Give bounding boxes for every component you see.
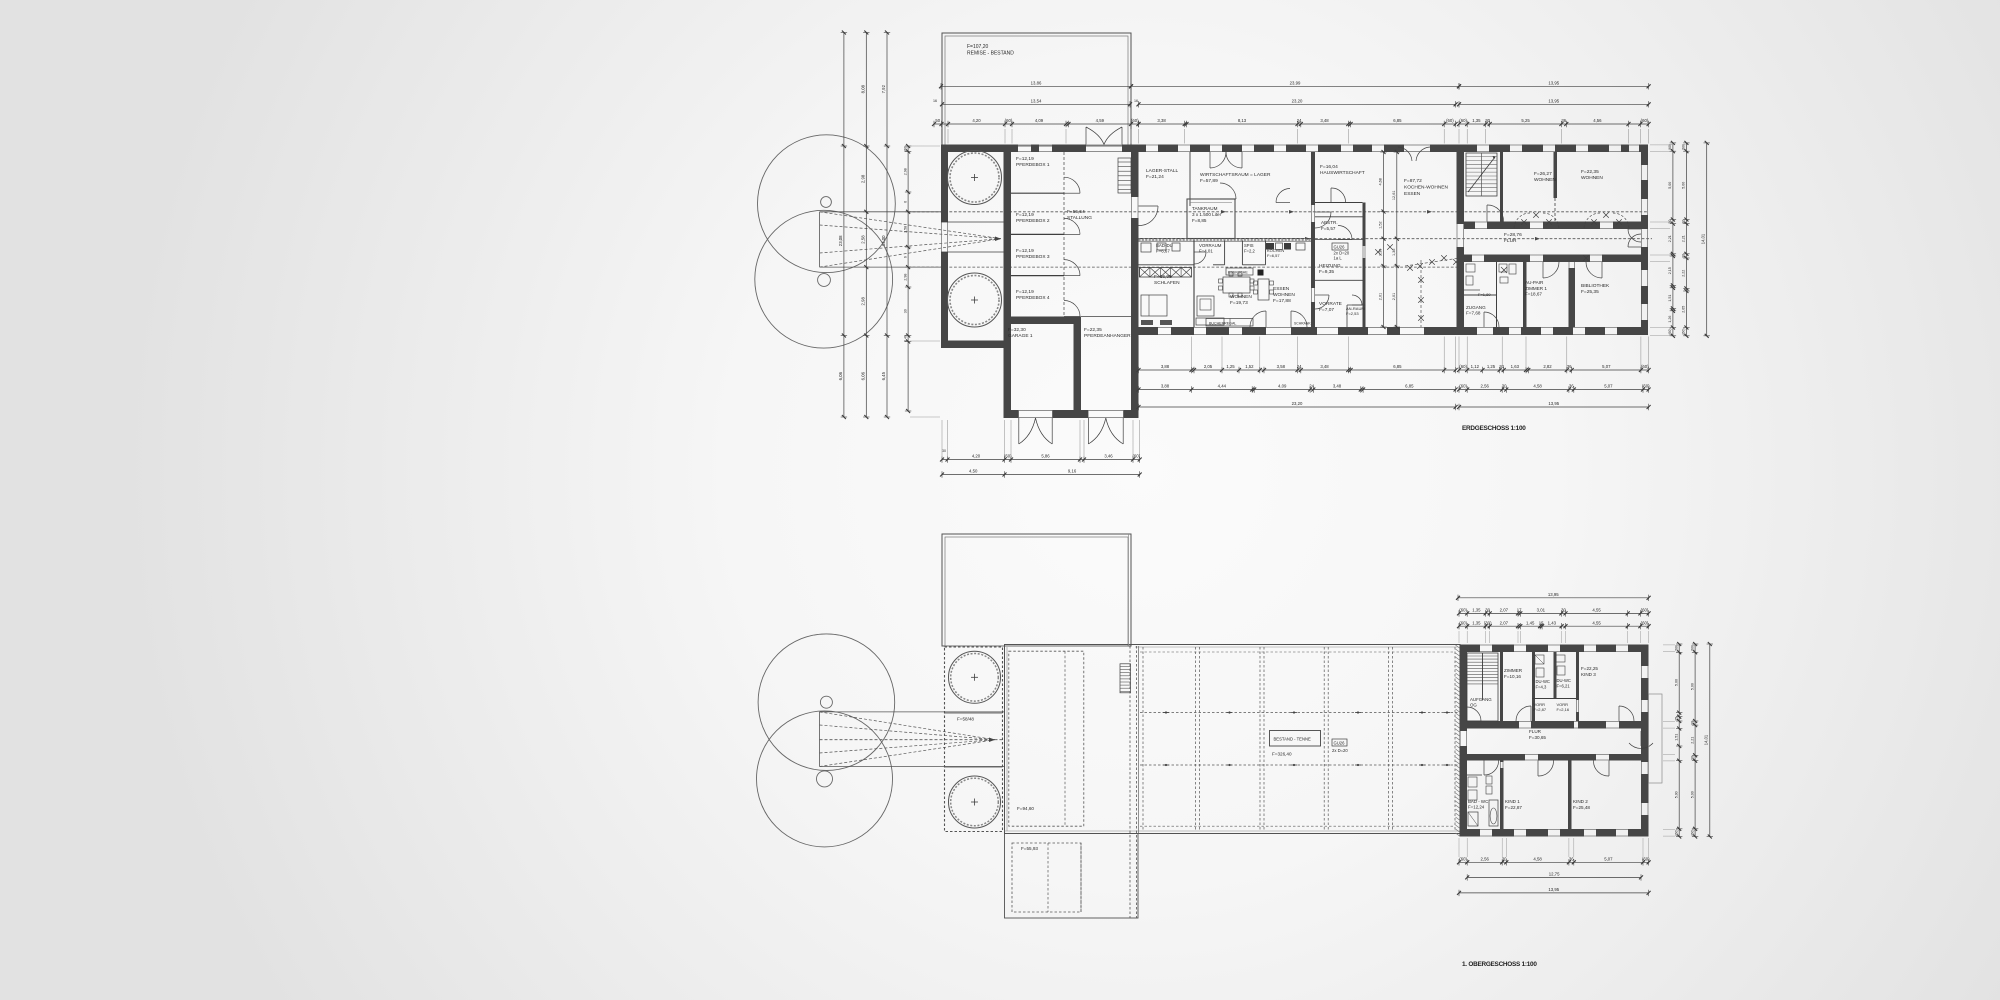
svg-text:F=12,24: F=12,24 xyxy=(1468,805,1485,810)
svg-text:36: 36 xyxy=(1569,384,1574,389)
svg-text:6,45: 6,45 xyxy=(881,371,886,380)
svg-text:15: 15 xyxy=(1539,620,1544,625)
svg-text:8,13: 8,13 xyxy=(1238,118,1247,123)
svg-text:F=30,65: F=30,65 xyxy=(1529,735,1546,740)
svg-text:13,95: 13,95 xyxy=(1548,887,1559,892)
svg-text:BUCHERREGAL: BUCHERREGAL xyxy=(1209,321,1236,325)
svg-text:BESTAND - TENNE: BESTAND - TENNE xyxy=(1274,736,1312,741)
svg-text:F=25,48: F=25,48 xyxy=(1573,805,1590,810)
svg-text:5,00: 5,00 xyxy=(1682,182,1686,189)
svg-text:(60): (60) xyxy=(1690,829,1694,835)
svg-text:F=19,73: F=19,73 xyxy=(1230,300,1248,306)
svg-text:3,88: 3,88 xyxy=(1161,364,1170,369)
svg-text:2,98: 2,98 xyxy=(861,297,866,306)
svg-text:KIND 2: KIND 2 xyxy=(1573,799,1588,804)
svg-text:5,00: 5,00 xyxy=(1690,683,1694,690)
svg-text:36: 36 xyxy=(1561,118,1566,123)
svg-text:50: 50 xyxy=(935,118,940,123)
svg-text:9,16: 9,16 xyxy=(1068,469,1077,474)
svg-text:5,07: 5,07 xyxy=(1604,384,1613,389)
svg-text:WOHNEN: WOHNEN xyxy=(1230,294,1252,300)
svg-text:16: 16 xyxy=(933,99,937,103)
svg-text:30: 30 xyxy=(1682,254,1686,258)
svg-text:F=5,57: F=5,57 xyxy=(1321,226,1336,231)
svg-text:VORRATE: VORRATE xyxy=(1319,301,1342,307)
svg-text:F=32,30: F=32,30 xyxy=(1008,327,1026,333)
svg-text:30: 30 xyxy=(1502,384,1507,389)
svg-text:5,00: 5,00 xyxy=(1674,679,1678,686)
svg-text:F=16,04: F=16,04 xyxy=(1320,164,1338,170)
svg-text:F=7,68: F=7,68 xyxy=(1466,311,1481,316)
svg-text:(30): (30) xyxy=(1484,620,1492,625)
svg-text:(60): (60) xyxy=(1131,118,1139,123)
svg-text:FLUR: FLUR xyxy=(1504,238,1517,244)
svg-text:1,12: 1,12 xyxy=(1471,364,1480,369)
svg-text:(60): (60) xyxy=(1459,384,1467,389)
svg-text:30: 30 xyxy=(1690,721,1694,725)
svg-text:1,51: 1,51 xyxy=(1674,734,1678,741)
svg-text:1,43: 1,43 xyxy=(1548,620,1557,625)
svg-text:AU-PAIR: AU-PAIR xyxy=(1525,280,1544,285)
svg-text:(60): (60) xyxy=(1668,328,1672,334)
svg-text:F=94,60: F=94,60 xyxy=(1017,806,1034,811)
svg-text:F=22,35: F=22,35 xyxy=(1581,169,1599,175)
svg-text:2,15: 2,15 xyxy=(1668,267,1672,274)
svg-text:(60): (60) xyxy=(1682,144,1686,150)
svg-text:13,95: 13,95 xyxy=(1548,401,1559,406)
svg-text:1a L: 1a L xyxy=(1334,256,1343,261)
svg-text:4,59: 4,59 xyxy=(1096,118,1105,123)
svg-text:F=25,35: F=25,35 xyxy=(1581,289,1599,295)
svg-text:(60): (60) xyxy=(1446,118,1454,123)
svg-text:16: 16 xyxy=(1134,99,1138,103)
svg-text:6,85: 6,85 xyxy=(1393,364,1402,369)
svg-text:F=12,19: F=12,19 xyxy=(1016,248,1034,254)
svg-text:2,98: 2,98 xyxy=(903,168,907,175)
svg-text:(60): (60) xyxy=(1682,328,1686,334)
svg-text:WOHNEN: WOHNEN xyxy=(1581,175,1603,181)
svg-text:4,56: 4,56 xyxy=(1593,118,1602,123)
svg-text:F=10,16: F=10,16 xyxy=(1504,674,1521,679)
svg-text:30: 30 xyxy=(1668,220,1672,224)
svg-text:PFERDEBOX 4: PFERDEBOX 4 xyxy=(1016,295,1050,301)
svg-text:F=18,67: F=18,67 xyxy=(1525,292,1542,297)
svg-text:1,25: 1,25 xyxy=(1487,364,1496,369)
svg-text:3,48: 3,48 xyxy=(1320,364,1329,369)
svg-text:F=2,2: F=2,2 xyxy=(1244,248,1255,253)
svg-text:TANKRAUM: TANKRAUM xyxy=(1192,206,1218,211)
svg-text:F=55,54: F=55,54 xyxy=(1067,209,1085,215)
svg-text:ZIMMER 1: ZIMMER 1 xyxy=(1525,286,1547,291)
svg-text:F=22,35: F=22,35 xyxy=(1084,327,1102,333)
svg-text:F=6,21: F=6,21 xyxy=(1557,683,1571,688)
svg-text:ESSKUCHE: ESSKUCHE xyxy=(1228,270,1248,274)
svg-text:3,48: 3,48 xyxy=(1320,118,1329,123)
svg-text:F=12,19: F=12,19 xyxy=(1016,156,1034,162)
svg-text:4,09: 4,09 xyxy=(1035,118,1044,123)
svg-text:3,01: 3,01 xyxy=(1537,608,1546,613)
svg-text:SCHRANK: SCHRANK xyxy=(1294,322,1311,326)
svg-text:30: 30 xyxy=(1561,608,1566,613)
svg-text:23,20: 23,20 xyxy=(1292,401,1303,406)
svg-text:PFERDEBOX 1: PFERDEBOX 1 xyxy=(1016,162,1050,168)
svg-text:30: 30 xyxy=(942,449,946,453)
svg-text:ABSTR.: ABSTR. xyxy=(1321,220,1338,225)
svg-text:1,26: 1,26 xyxy=(1668,316,1672,323)
svg-text:6,85: 6,85 xyxy=(1405,384,1414,389)
svg-text:PFERDEANHANGER: PFERDEANHANGER xyxy=(1084,333,1131,339)
svg-text:3,88: 3,88 xyxy=(1161,384,1170,389)
svg-text:5,00: 5,00 xyxy=(1690,791,1694,798)
svg-text:30: 30 xyxy=(1502,857,1507,862)
svg-text:2,21: 2,21 xyxy=(1690,737,1694,744)
svg-text:5,00: 5,00 xyxy=(1674,791,1678,798)
svg-text:6: 6 xyxy=(903,256,907,258)
svg-text:PFERDEBOX 3: PFERDEBOX 3 xyxy=(1016,254,1050,260)
svg-text:PFERDEBOX 2: PFERDEBOX 2 xyxy=(1016,218,1050,224)
svg-text:F=12,19: F=12,19 xyxy=(1016,289,1034,295)
svg-text:F=9,35: F=9,35 xyxy=(1319,269,1334,275)
svg-text:2,05: 2,05 xyxy=(1204,364,1213,369)
svg-text:F=1,89: F=1,89 xyxy=(1478,292,1491,297)
svg-text:30: 30 xyxy=(1682,220,1686,224)
svg-text:SPIS: SPIS xyxy=(1244,243,1254,248)
svg-text:17: 17 xyxy=(1517,608,1522,613)
svg-text:7,92: 7,92 xyxy=(881,84,886,93)
svg-text:(60): (60) xyxy=(1459,857,1467,862)
svg-text:1,35: 1,35 xyxy=(1472,620,1481,625)
svg-text:1. OBERGESCHOSS 1:100: 1. OBERGESCHOSS 1:100 xyxy=(1462,961,1537,968)
svg-text:4,50: 4,50 xyxy=(969,469,978,474)
svg-text:1,51: 1,51 xyxy=(1668,295,1672,302)
svg-text:3,48: 3,48 xyxy=(1333,384,1342,389)
svg-text:3,38: 3,38 xyxy=(1157,118,1166,123)
svg-text:OG: OG xyxy=(1470,703,1477,708)
svg-text:KIND 3: KIND 3 xyxy=(1581,672,1596,677)
svg-text:(60): (60) xyxy=(1641,118,1649,123)
svg-text:12,75: 12,75 xyxy=(1549,872,1560,877)
svg-text:14,01: 14,01 xyxy=(1701,233,1706,244)
svg-text:3,46: 3,46 xyxy=(1104,454,1113,459)
svg-text:24: 24 xyxy=(1297,118,1302,123)
svg-text:FLUR: FLUR xyxy=(1529,729,1542,734)
svg-text:3,58: 3,58 xyxy=(1277,364,1286,369)
svg-text:2,58: 2,58 xyxy=(861,235,866,244)
svg-text:1,52: 1,52 xyxy=(1245,364,1254,369)
svg-text:2,56: 2,56 xyxy=(1481,384,1490,389)
svg-text:F=22,87: F=22,87 xyxy=(1505,805,1522,810)
svg-text:F=2,53: F=2,53 xyxy=(1346,311,1359,316)
svg-text:24: 24 xyxy=(1309,384,1314,389)
svg-text:2,82: 2,82 xyxy=(1543,364,1552,369)
svg-text:DU-WC: DU-WC xyxy=(1536,679,1550,684)
svg-text:2,98: 2,98 xyxy=(861,174,866,183)
svg-text:13,86: 13,86 xyxy=(1031,81,1042,86)
svg-text:13,95: 13,95 xyxy=(1548,592,1559,597)
svg-text:F=26,27: F=26,27 xyxy=(1534,171,1552,177)
svg-text:6,85: 6,85 xyxy=(1393,118,1402,123)
svg-text:F=16,95: F=16,95 xyxy=(1154,274,1172,280)
svg-text:30: 30 xyxy=(1485,608,1490,613)
svg-text:1,35: 1,35 xyxy=(1472,118,1481,123)
svg-text:F=55,93: F=55,93 xyxy=(1021,846,1038,851)
svg-text:STALLUNG: STALLUNG xyxy=(1067,215,1092,221)
svg-text:1,35: 1,35 xyxy=(1472,608,1481,613)
svg-text:4,58: 4,58 xyxy=(1533,384,1542,389)
svg-text:F=2,16: F=2,16 xyxy=(1557,707,1570,712)
svg-text:1,52: 1,52 xyxy=(1379,221,1383,228)
svg-text:REMISE - BESTAND: REMISE - BESTAND xyxy=(967,50,1014,56)
svg-text:13,95: 13,95 xyxy=(1548,99,1559,104)
svg-text:(60): (60) xyxy=(1459,608,1467,613)
svg-text:23,20: 23,20 xyxy=(1292,99,1303,104)
svg-text:5,86: 5,86 xyxy=(1041,454,1050,459)
svg-text:4,68: 4,68 xyxy=(1379,178,1383,185)
svg-text:F=6,57: F=6,57 xyxy=(1267,253,1280,258)
svg-text:23,99: 23,99 xyxy=(1290,81,1301,86)
svg-text:14,00: 14,00 xyxy=(881,235,886,246)
svg-text:AUFGANG: AUFGANG xyxy=(1470,697,1492,702)
svg-text:5,07: 5,07 xyxy=(1602,364,1611,369)
svg-text:F=57,89: F=57,89 xyxy=(1200,178,1218,184)
svg-text:F=58/48: F=58/48 xyxy=(957,717,974,722)
svg-text:ZUGANG: ZUGANG xyxy=(1466,305,1486,310)
svg-text:4,58: 4,58 xyxy=(1533,857,1542,862)
svg-text:GU26: GU26 xyxy=(1334,740,1346,745)
svg-text:2,56: 2,56 xyxy=(1481,857,1490,862)
svg-text:WIRTSCHAFTSRAUM = LAGER: WIRTSCHAFTSRAUM = LAGER xyxy=(1200,172,1271,178)
svg-text:(60): (60) xyxy=(1674,645,1678,651)
svg-text:13,95: 13,95 xyxy=(1548,81,1559,86)
svg-text:(60): (60) xyxy=(1641,608,1649,613)
svg-text:30: 30 xyxy=(903,309,907,313)
svg-text:2,98: 2,98 xyxy=(903,274,907,281)
svg-text:KOCHEN-WOHNEN: KOCHEN-WOHNEN xyxy=(1404,185,1449,191)
svg-text:2,07: 2,07 xyxy=(1500,608,1509,613)
svg-text:HAUSWIRTSCHAFT: HAUSWIRTSCHAFT xyxy=(1320,170,1365,176)
svg-text:WOHNEN: WOHNEN xyxy=(1273,292,1295,298)
svg-text:6: 6 xyxy=(903,201,907,203)
svg-text:36: 36 xyxy=(1567,364,1572,369)
svg-text:2,01: 2,01 xyxy=(1379,293,1383,300)
svg-text:LAGER-STALL: LAGER-STALL xyxy=(1146,168,1179,174)
svg-text:2,21: 2,21 xyxy=(1682,235,1686,242)
svg-text:5,25: 5,25 xyxy=(1521,118,1530,123)
svg-text:WOHNEN: WOHNEN xyxy=(1534,177,1556,183)
svg-text:(60): (60) xyxy=(1459,118,1467,123)
svg-text:F=22,25: F=22,25 xyxy=(1581,666,1598,671)
svg-text:GARAGE 1: GARAGE 1 xyxy=(1008,333,1033,339)
svg-text:(60): (60) xyxy=(1005,118,1013,123)
svg-text:12,61: 12,61 xyxy=(1392,191,1396,201)
svg-text:1,45: 1,45 xyxy=(1526,620,1535,625)
svg-text:(60): (60) xyxy=(1641,620,1649,625)
svg-text:30: 30 xyxy=(1690,756,1694,760)
svg-text:F=8,85: F=8,85 xyxy=(1192,218,1207,223)
svg-text:SCHLAFEN: SCHLAFEN xyxy=(1154,280,1180,286)
svg-text:F=87,72: F=87,72 xyxy=(1404,178,1422,184)
svg-text:2x D=20: 2x D=20 xyxy=(1332,748,1348,753)
svg-text:KIND 1: KIND 1 xyxy=(1505,799,1520,804)
svg-text:30: 30 xyxy=(1485,118,1490,123)
svg-text:1,63: 1,63 xyxy=(1511,364,1520,369)
svg-text:2,22: 2,22 xyxy=(1682,270,1686,277)
svg-text:BAD-DU: BAD-DU xyxy=(1156,243,1173,248)
svg-text:F=6,67: F=6,67 xyxy=(1156,249,1170,254)
svg-text:4,20: 4,20 xyxy=(972,454,981,459)
svg-text:4,44: 4,44 xyxy=(1218,384,1227,389)
svg-text:5,00: 5,00 xyxy=(1668,182,1672,189)
svg-text:23,08: 23,08 xyxy=(838,235,843,246)
svg-text:BIBLIOTHEK: BIBLIOTHEK xyxy=(1581,283,1610,289)
svg-text:13,54: 13,54 xyxy=(1031,99,1042,104)
svg-text:36: 36 xyxy=(1569,857,1574,862)
svg-text:DU-WC: DU-WC xyxy=(1557,678,1571,683)
svg-text:(60): (60) xyxy=(1642,857,1650,862)
svg-text:1,25: 1,25 xyxy=(1226,364,1235,369)
svg-text:HEIZUNG: HEIZUNG xyxy=(1319,263,1341,269)
svg-text:8,08: 8,08 xyxy=(861,84,866,93)
svg-text:F=12,19: F=12,19 xyxy=(1016,212,1034,218)
svg-text:(60): (60) xyxy=(1642,384,1650,389)
svg-text:VORRAUM: VORRAUM xyxy=(1199,243,1222,248)
svg-text:15: 15 xyxy=(1674,717,1678,721)
svg-text:ESSEN: ESSEN xyxy=(1404,191,1421,197)
svg-text:2,21: 2,21 xyxy=(1668,235,1672,242)
svg-text:(60): (60) xyxy=(1459,620,1467,625)
svg-text:6,46: 6,46 xyxy=(903,335,907,342)
svg-text:4,55: 4,55 xyxy=(1592,620,1601,625)
svg-text:6,06: 6,06 xyxy=(861,371,866,380)
svg-text:14,01: 14,01 xyxy=(1704,734,1709,745)
svg-text:ERDGESCHOSS 1:100: ERDGESCHOSS 1:100 xyxy=(1462,425,1526,432)
svg-text:F=17,88: F=17,88 xyxy=(1273,298,1291,304)
svg-text:ZIMMER: ZIMMER xyxy=(1504,668,1523,673)
svg-text:3 x 1.500 Liter: 3 x 1.500 Liter xyxy=(1192,212,1222,217)
svg-text:F=28,76: F=28,76 xyxy=(1504,232,1522,238)
svg-text:F=107,20: F=107,20 xyxy=(967,44,988,50)
svg-text:GU26: GU26 xyxy=(1334,244,1346,249)
svg-text:2,58: 2,58 xyxy=(903,226,907,233)
svg-text:F=21,24: F=21,24 xyxy=(1146,174,1164,180)
svg-text:(60): (60) xyxy=(1459,364,1467,369)
svg-text:2,07: 2,07 xyxy=(1500,620,1509,625)
svg-text:4,55: 4,55 xyxy=(1592,608,1601,613)
svg-text:F=326,40: F=326,40 xyxy=(1272,752,1292,757)
svg-text:5,07: 5,07 xyxy=(1604,857,1613,862)
svg-text:(60): (60) xyxy=(1674,829,1678,835)
svg-text:(60): (60) xyxy=(903,146,907,152)
svg-text:F=4,3: F=4,3 xyxy=(1536,684,1547,689)
svg-text:F=2,87: F=2,87 xyxy=(1534,707,1547,712)
svg-text:4,09: 4,09 xyxy=(1278,384,1287,389)
svg-text:6,06: 6,06 xyxy=(838,371,843,380)
svg-text:ESSEN: ESSEN xyxy=(1273,286,1290,292)
svg-text:2,01: 2,01 xyxy=(1392,293,1396,300)
svg-text:(60): (60) xyxy=(1641,364,1649,369)
svg-text:4,20: 4,20 xyxy=(972,118,981,123)
svg-text:2,65: 2,65 xyxy=(1682,306,1686,313)
svg-text:(60): (60) xyxy=(1690,645,1694,651)
